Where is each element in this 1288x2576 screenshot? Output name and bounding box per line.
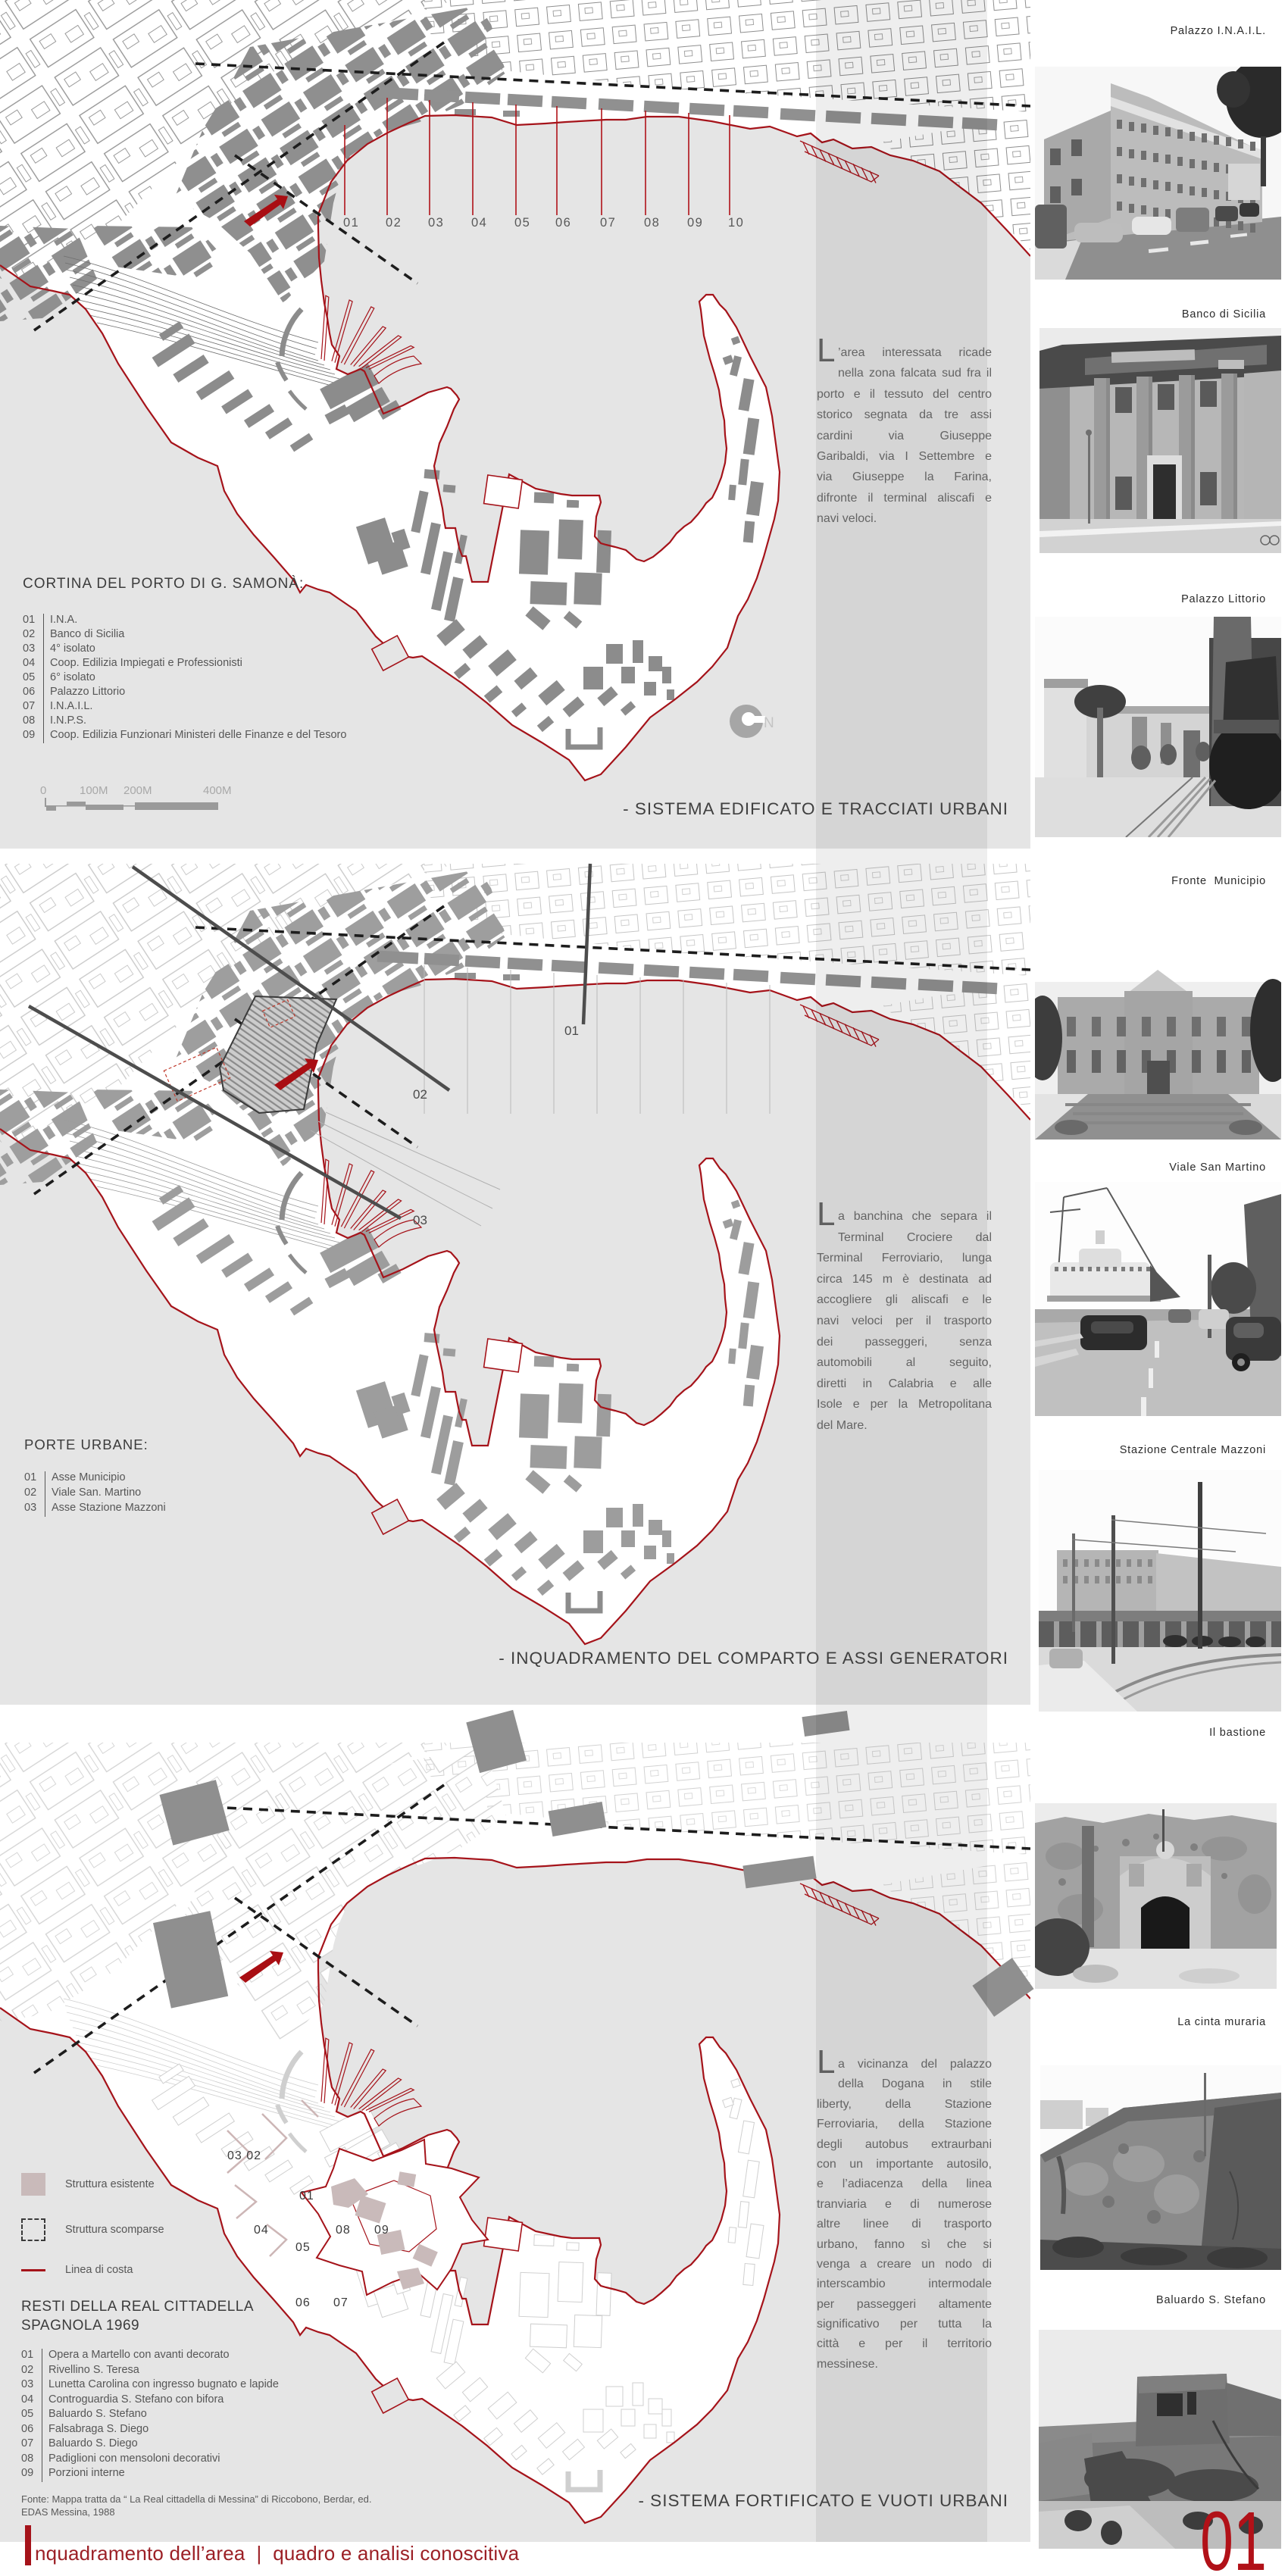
svg-text:Viale San Martino: Viale San Martino	[1169, 1161, 1266, 1174]
svg-text:01: 01	[343, 216, 359, 230]
svg-text:03: 03	[428, 216, 444, 230]
svg-text:N: N	[764, 715, 774, 731]
svg-text:03 02: 03 02	[227, 2149, 261, 2162]
svg-text:10: 10	[728, 216, 744, 230]
svg-text:07: 07	[600, 216, 616, 230]
svg-text:Palazzo Littorio: Palazzo Littorio	[1181, 593, 1266, 605]
svg-text:04: 04	[471, 216, 487, 230]
svg-text:08: 08	[644, 216, 660, 230]
svg-text:09: 09	[687, 216, 703, 230]
svg-text:01: 01	[1200, 2495, 1267, 2576]
svg-text:200M: 200M	[123, 784, 152, 797]
svg-text:09: 09	[374, 2224, 389, 2237]
svg-text:0: 0	[40, 784, 46, 797]
svg-text:Palazzo I.N.A.I.L.: Palazzo I.N.A.I.L.	[1171, 25, 1266, 37]
svg-text:Baluardo S. Stefano: Baluardo S. Stefano	[1156, 2294, 1266, 2306]
svg-text:Banco di Sicilia: Banco di Sicilia	[1182, 308, 1266, 320]
svg-text:05: 05	[514, 216, 530, 230]
svg-text:02: 02	[386, 216, 402, 230]
svg-text:100M: 100M	[80, 784, 108, 797]
svg-text:Stazione Centrale Mazzoni: Stazione Centrale Mazzoni	[1120, 1444, 1266, 1456]
svg-text:03: 03	[413, 1213, 427, 1227]
svg-text:06: 06	[555, 216, 571, 230]
svg-text:Il bastione: Il bastione	[1209, 1727, 1266, 1739]
svg-text:02: 02	[413, 1087, 427, 1102]
svg-text:400M: 400M	[203, 784, 232, 797]
svg-text:La cinta muraria: La cinta muraria	[1177, 2016, 1266, 2028]
svg-text:01: 01	[564, 1024, 579, 1038]
svg-text:Fronte Municipio: Fronte Municipio	[1171, 875, 1266, 887]
